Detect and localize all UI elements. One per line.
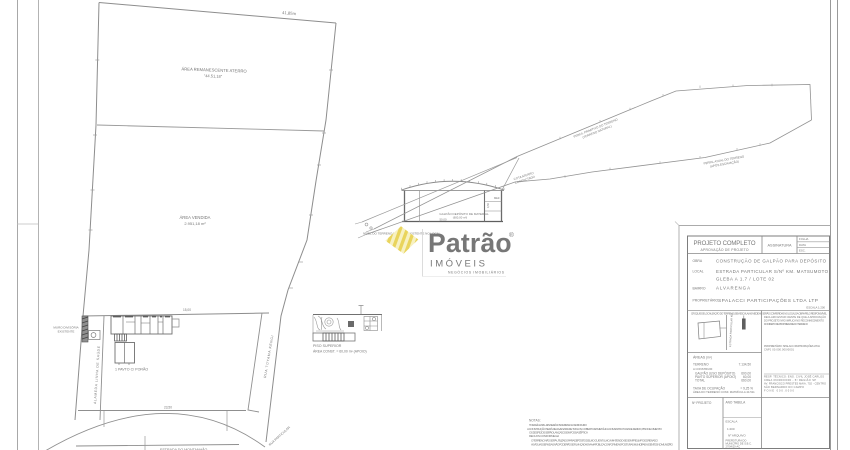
- svg-text:ESTRADA PARTICULAR S/Nº KM. MA: ESTRADA PARTICULAR S/Nº KM. MATSUMOTO: [716, 269, 829, 274]
- svg-text:CROQUIS DE LOCALIZAÇÃO DO TERR: CROQUIS DE LOCALIZAÇÃO DO TERRENO (SEM E…: [691, 311, 828, 316]
- svg-text:TERRENO: TERRENO: [693, 363, 709, 367]
- svg-text:PISO SUPERIOR: PISO SUPERIOR: [313, 344, 342, 348]
- svg-text:IMÓVEIS: IMÓVEIS: [430, 259, 488, 270]
- svg-text:ANO TABELA: ANO TABELA: [726, 401, 747, 405]
- svg-text:FOLHA: FOLHA: [799, 237, 808, 241]
- svg-text:Nº ARQUIVO: Nº ARQUIVO: [728, 434, 746, 438]
- svg-text:15,00: 15,00: [183, 308, 191, 312]
- svg-text:DATA: DATA: [799, 243, 806, 247]
- svg-text:MEZ.: MEZ.: [494, 196, 500, 200]
- svg-text:EXISTENTE: EXISTENTE: [58, 330, 75, 334]
- svg-text:CONSTRUÇÃO DE GALPÃO PARA DEPÓ: CONSTRUÇÃO DE GALPÃO PARA DEPÓSITO: [716, 259, 827, 264]
- svg-text:2.951,18 m²: 2.951,18 m²: [184, 221, 206, 226]
- svg-text:APROVAÇÃO DE PROJETO: APROVAÇÃO DE PROJETO: [701, 247, 749, 252]
- svg-text:CNPJ 00.000.000/0001: CNPJ 00.000.000/0001: [764, 348, 795, 352]
- svg-text:PROPRIETÁRIO: SPALACCI PARTICI: PROPRIETÁRIO: SPALACCI PARTICIPAÇÕES LTD…: [764, 343, 820, 348]
- svg-text:FONE 000.0000: FONE 000.0000: [764, 389, 795, 393]
- svg-text:7.134,50: 7.134,50: [739, 363, 752, 367]
- svg-text:SPALACCI PARTICIPAÇÕES LTDA LT: SPALACCI PARTICIPAÇÕES LTDA LTP: [718, 297, 818, 304]
- svg-text:GLEBA A 1.7 / LOTE 02: GLEBA A 1.7 / LOTE 02: [716, 277, 775, 282]
- svg-text:ÁREA CONST. = 60,00 m² (APOIO): ÁREA CONST. = 60,00 m² (APOIO): [313, 350, 367, 354]
- svg-text:(m²): (m²): [706, 356, 712, 360]
- svg-text:PROPRIETÁRIO: PROPRIETÁRIO: [693, 299, 719, 303]
- svg-text:ALVARENGA: ALVARENGA: [716, 286, 750, 291]
- svg-text:PERFIL PRIMITIVO DO TERRENO: PERFIL PRIMITIVO DO TERRENO: [573, 117, 619, 139]
- svg-text:LOCAL: LOCAL: [693, 270, 704, 274]
- svg-text:DO DIREITO DE PROPRIEDADE DO T: DO DIREITO DE PROPRIEDADE DO TERRENO: [764, 322, 808, 326]
- svg-text:ESCALA 1:200: ESCALA 1:200: [806, 306, 825, 310]
- svg-text:1:200: 1:200: [727, 427, 735, 431]
- svg-text:ÁREA DO TERRENO CONF. MATRÍCUL: ÁREA DO TERRENO CONF. MATRÍCULA 44.511: [693, 390, 755, 394]
- svg-text:ÁREA VENDIDA: ÁREA VENDIDA: [180, 215, 211, 220]
- svg-text:A CONSTRUIR:: A CONSTRUIR:: [693, 367, 713, 371]
- svg-text:4,50: 4,50: [486, 202, 490, 208]
- svg-text:PROJETO COMPLETO: PROJETO COMPLETO: [694, 241, 756, 247]
- svg-text:41,85m: 41,85m: [282, 10, 297, 16]
- svg-text:Nº PROJETO: Nº PROJETO: [692, 401, 712, 405]
- svg-text:1 PAVTO C/ PORÃO: 1 PAVTO C/ PORÃO: [115, 367, 148, 372]
- svg-text:OBRA: OBRA: [693, 259, 703, 263]
- svg-text:660,00: 660,00: [741, 379, 751, 383]
- svg-text:TOTAL: TOTAL: [695, 379, 705, 383]
- svg-text:ASSINATURA: ASSINATURA: [768, 244, 792, 248]
- svg-text:“44.51,18”: “44.51,18”: [204, 73, 223, 79]
- svg-text:27/04/20-AC: 27/04/20-AC: [726, 445, 741, 449]
- svg-text:®: ®: [509, 231, 514, 239]
- svg-text:(600,00 m²): (600,00 m²): [453, 216, 468, 220]
- svg-text:ESTRADA PARTICULAR KM: ESTRADA PARTICULAR KM: [728, 313, 734, 347]
- svg-text:ESC.: ESC.: [799, 249, 806, 253]
- svg-text:ALAMEDA LINHA DE SAÚDE: ALAMEDA LINHA DE SAÚDE: [92, 345, 101, 404]
- svg-text:NOTAS:: NOTAS:: [529, 419, 541, 423]
- svg-text:50,00: 50,00: [440, 218, 447, 222]
- svg-text:Patrão: Patrão: [428, 228, 511, 258]
- svg-text:AS ÁGUAS SERVIDAS NÃO PODERÃO: AS ÁGUAS SERVIDAS NÃO PODERÃO SER LANÇAD…: [531, 441, 674, 446]
- svg-text:ÁREAS: ÁREAS: [693, 356, 706, 360]
- svg-text:23,50: 23,50: [164, 406, 172, 410]
- svg-text:RUA TOYAMA KENGI: RUA TOYAMA KENGI: [263, 335, 274, 378]
- svg-text:RUA PARTICULAR: RUA PARTICULAR: [268, 425, 292, 447]
- svg-text:NEGÓCIOS IMOBILIÁRIOS: NEGÓCIOS IMOBILIÁRIOS: [448, 270, 505, 275]
- svg-text:ESCALA: ESCALA: [726, 420, 738, 424]
- svg-text:AV. FRANCISCO PRESTES MAIA, 70: AV. FRANCISCO PRESTES MAIA, 702 - CENTRO: [764, 382, 826, 386]
- svg-text:BAIRRO: BAIRRO: [693, 287, 706, 291]
